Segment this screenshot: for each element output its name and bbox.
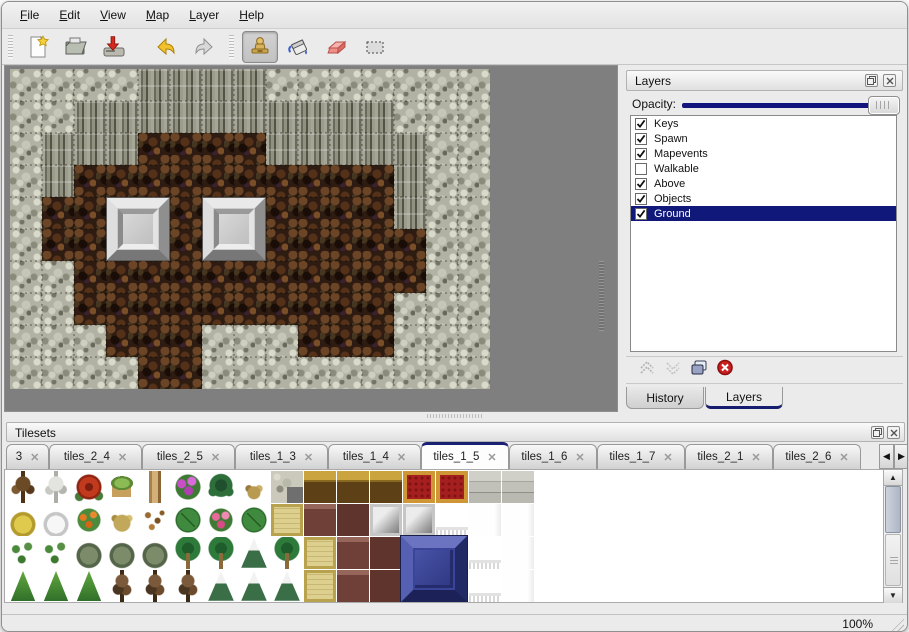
map-tile-rock[interactable]	[426, 69, 458, 101]
tileset-tab-label: tiles_2_6	[785, 451, 831, 463]
palette-tile-tree_twist[interactable]	[139, 570, 171, 602]
map-canvas[interactable]	[10, 69, 490, 389]
palette-tile-tree_snow[interactable]	[40, 471, 72, 503]
tileset-tab-label: tiles_1_6	[521, 451, 567, 463]
close-tab-icon[interactable]: ✕	[575, 451, 584, 464]
vertical-splitter-handle[interactable]	[599, 261, 604, 331]
map-tile-rock[interactable]	[426, 293, 458, 325]
map-tile-floor[interactable]	[362, 165, 394, 197]
palette-tile-weed[interactable]	[238, 471, 270, 503]
map-tile-floor[interactable]	[298, 261, 330, 293]
map-tile-floor[interactable]	[330, 325, 362, 357]
map-tile-rock[interactable]	[10, 325, 42, 357]
map-tile-floor[interactable]	[330, 165, 362, 197]
map-tile-cliff-wall[interactable]	[74, 101, 106, 133]
palette-tile-tree_cone[interactable]	[73, 570, 105, 602]
menu-item-edit[interactable]: Edit	[49, 4, 90, 26]
palette-tile-sprouts[interactable]	[40, 537, 72, 569]
dock-tab-layers[interactable]: Layers	[705, 387, 783, 409]
map-tile-cliff-wall[interactable]	[42, 133, 74, 165]
map-tile-cliff-wall[interactable]	[202, 69, 234, 101]
map-tile-floor[interactable]	[266, 261, 298, 293]
new-file-icon	[25, 34, 51, 60]
palette-tile-mat[interactable]	[304, 537, 336, 569]
map-tile-rock[interactable]	[42, 101, 74, 133]
map-tile-rock[interactable]	[458, 261, 490, 293]
map-tile-cliff-wall[interactable]	[74, 133, 106, 165]
palette-tile-bush_green[interactable]	[139, 537, 171, 569]
close-tab-icon[interactable]: ✕	[397, 451, 406, 464]
map-tile-floor[interactable]	[298, 229, 330, 261]
layer-visibility-checkbox[interactable]	[635, 208, 647, 220]
palette-tile-table_gold[interactable]	[370, 471, 402, 503]
stone-platform[interactable]	[203, 198, 265, 260]
raise-layer-button[interactable]	[634, 359, 660, 381]
palette-tile-carpet_red[interactable]	[403, 471, 435, 503]
map-tile-cliff-wall[interactable]	[330, 133, 362, 165]
map-tile-floor[interactable]	[170, 325, 202, 357]
map-tile-rock[interactable]	[10, 229, 42, 261]
map-tile-cliff-wall[interactable]	[394, 197, 426, 229]
layer-row-objects[interactable]: Objects	[631, 191, 896, 206]
menu-item-layer[interactable]: Layer	[179, 4, 229, 26]
fill-tool-icon	[286, 34, 312, 60]
duplicate-layer-button[interactable]	[686, 359, 712, 381]
palette-tile-white[interactable]	[502, 570, 534, 602]
close-tab-icon[interactable]: ✕	[751, 451, 760, 464]
map-tile-floor[interactable]	[170, 357, 202, 389]
palette-tile-table_gold[interactable]	[337, 471, 369, 503]
palette-tile-table_maroon[interactable]	[304, 504, 336, 536]
undo-icon	[153, 34, 179, 60]
new-file-button[interactable]	[21, 32, 55, 62]
map-tile-rock[interactable]	[106, 69, 138, 101]
map-tile-rock[interactable]	[426, 357, 458, 389]
palette-tile-tree_twist[interactable]	[172, 570, 204, 602]
map-tile-cliff-wall[interactable]	[362, 101, 394, 133]
map-tile-cliff-wall[interactable]	[170, 101, 202, 133]
map-tile-floor[interactable]	[362, 293, 394, 325]
scrollbar-grip[interactable]	[885, 534, 901, 586]
opacity-slider-track[interactable]	[682, 103, 898, 108]
map-tile-floor[interactable]	[74, 293, 106, 325]
map-tile-floor[interactable]	[138, 325, 170, 357]
map-tile-rock[interactable]	[330, 357, 362, 389]
layer-row-walkable[interactable]: Walkable	[631, 161, 896, 176]
map-tile-cliff-wall[interactable]	[106, 133, 138, 165]
highlighted-blue-tile[interactable]	[401, 536, 467, 602]
layer-row-spawn[interactable]: Spawn	[631, 131, 896, 146]
palette-tile-pine_snow[interactable]	[238, 570, 270, 602]
palette-tile-curtain[interactable]	[436, 504, 468, 536]
map-tile-rock[interactable]	[74, 357, 106, 389]
layers-dock-titlebar: Layers	[626, 70, 903, 91]
menu-item-help[interactable]: Help	[229, 4, 274, 26]
stamp-tool-button[interactable]	[242, 31, 278, 63]
map-tile-rock[interactable]	[394, 101, 426, 133]
map-tile-floor[interactable]	[202, 261, 234, 293]
palette-tile-pine_snow[interactable]	[271, 570, 303, 602]
map-tile-rock[interactable]	[362, 69, 394, 101]
layer-visibility-checkbox[interactable]	[635, 193, 647, 205]
toolbar-handle	[8, 35, 13, 59]
map-tile-floor[interactable]	[234, 293, 266, 325]
save-file-icon	[101, 34, 127, 60]
palette-tile-hay[interactable]	[7, 504, 39, 536]
palette-tile-lilypad[interactable]	[238, 504, 270, 536]
tileset-tab-bar: 3✕tiles_2_4✕tiles_2_5✕tiles_1_3✕tiles_1_…	[4, 442, 908, 469]
tileset-palette[interactable]	[4, 469, 883, 603]
map-tile-rock[interactable]	[42, 357, 74, 389]
map-tile-cliff-wall[interactable]	[234, 101, 266, 133]
palette-tile-trunk[interactable]	[139, 471, 171, 503]
map-tile-rock[interactable]	[266, 357, 298, 389]
layer-row-ground[interactable]: Ground	[631, 206, 896, 221]
palette-tile-table_maroon[interactable]	[337, 537, 369, 569]
layer-name: Ground	[654, 208, 691, 220]
map-tile-rock[interactable]	[394, 293, 426, 325]
tileset-tab-tiles_2_6[interactable]: tiles_2_6✕	[773, 444, 861, 469]
map-tile-floor[interactable]	[170, 165, 202, 197]
palette-tile-silver_block[interactable]	[403, 504, 435, 536]
map-tile-rock[interactable]	[458, 357, 490, 389]
map-tile-floor[interactable]	[202, 133, 234, 165]
menu-item-map[interactable]: Map	[136, 4, 179, 26]
map-tile-rock[interactable]	[458, 197, 490, 229]
map-tile-rock[interactable]	[458, 101, 490, 133]
map-tile-cliff-wall[interactable]	[394, 165, 426, 197]
map-tile-rock[interactable]	[106, 357, 138, 389]
map-tile-rock[interactable]	[10, 293, 42, 325]
map-tile-floor[interactable]	[330, 293, 362, 325]
palette-tile-leaves[interactable]	[139, 504, 171, 536]
palette-tile-fern[interactable]	[205, 471, 237, 503]
map-tile-floor[interactable]	[170, 133, 202, 165]
map-tile-rock[interactable]	[74, 69, 106, 101]
map-tile-floor[interactable]	[74, 197, 106, 229]
tileset-tab-tiles_2_4[interactable]: tiles_2_4✕	[49, 444, 142, 469]
map-tile-floor[interactable]	[170, 261, 202, 293]
tileset-tab-tiles_1_3[interactable]: tiles_1_3✕	[235, 444, 328, 469]
palette-tile-table_maroon[interactable]	[337, 570, 369, 602]
map-tile-rock[interactable]	[298, 69, 330, 101]
close-tab-icon[interactable]: ✕	[211, 451, 220, 464]
palette-tile-sprouts[interactable]	[7, 537, 39, 569]
palette-tile-palm[interactable]	[271, 537, 303, 569]
map-tile-rock[interactable]	[426, 133, 458, 165]
map-tile-floor[interactable]	[74, 165, 106, 197]
horizontal-splitter-handle[interactable]	[427, 414, 482, 418]
map-tile-rock[interactable]	[426, 325, 458, 357]
opacity-slider-handle[interactable]	[868, 96, 900, 115]
zoom-level: 100%	[842, 617, 873, 631]
palette-tile-mat[interactable]	[304, 570, 336, 602]
palette-tile-palm[interactable]	[172, 537, 204, 569]
palette-tile-snow_mound[interactable]	[40, 504, 72, 536]
map-tile-rock[interactable]	[266, 325, 298, 357]
map-tile-floor[interactable]	[234, 165, 266, 197]
menu-item-file[interactable]: File	[10, 4, 49, 26]
close-tab-icon[interactable]: ✕	[839, 451, 848, 464]
tileset-tab-tiles_2_1[interactable]: tiles_2_1✕	[685, 444, 773, 469]
layer-visibility-checkbox[interactable]	[635, 163, 647, 175]
lower-layer-button[interactable]	[660, 359, 686, 381]
map-tile-floor[interactable]	[202, 165, 234, 197]
tileset-tab-tiles_1_6[interactable]: tiles_1_6✕	[509, 444, 597, 469]
map-tile-floor[interactable]	[266, 229, 298, 261]
map-tile-floor[interactable]	[362, 229, 394, 261]
map-tile-floor[interactable]	[362, 197, 394, 229]
map-tile-rock[interactable]	[458, 165, 490, 197]
palette-tile-white[interactable]	[469, 504, 501, 536]
map-tile-floor[interactable]	[234, 133, 266, 165]
map-tile-cliff-wall[interactable]	[298, 133, 330, 165]
palette-tile-flowers_pink[interactable]	[205, 504, 237, 536]
stone-platform[interactable]	[107, 198, 169, 260]
map-tile-rock[interactable]	[330, 69, 362, 101]
layer-row-mapevents[interactable]: Mapevents	[631, 146, 896, 161]
map-tile-rock[interactable]	[362, 357, 394, 389]
palette-tile-tree_cone[interactable]	[40, 570, 72, 602]
float-panel-icon[interactable]	[871, 426, 884, 439]
delete-layer-icon	[716, 359, 734, 381]
map-tile-rock[interactable]	[458, 325, 490, 357]
map-tile-rock[interactable]	[426, 101, 458, 133]
map-tile-rock[interactable]	[458, 133, 490, 165]
delete-layer-button[interactable]	[712, 359, 738, 381]
map-tile-floor[interactable]	[234, 261, 266, 293]
map-tile-floor[interactable]	[170, 197, 202, 229]
map-tile-rock[interactable]	[394, 69, 426, 101]
map-tile-rock[interactable]	[458, 293, 490, 325]
map-tile-floor[interactable]	[74, 261, 106, 293]
map-tile-rock[interactable]	[426, 261, 458, 293]
close-panel-icon[interactable]	[883, 74, 896, 87]
tileset-tab-tiles_1_5[interactable]: tiles_1_5✕	[421, 442, 509, 469]
map-tile-floor[interactable]	[362, 325, 394, 357]
map-tile-floor[interactable]	[42, 197, 74, 229]
map-tile-rock[interactable]	[10, 165, 42, 197]
map-tile-floor[interactable]	[266, 293, 298, 325]
map-tile-floor[interactable]	[330, 229, 362, 261]
palette-tile-bush_green[interactable]	[106, 537, 138, 569]
map-tile-floor[interactable]	[330, 261, 362, 293]
map-tile-floor[interactable]	[394, 229, 426, 261]
resize-grip[interactable]	[890, 617, 904, 631]
palette-tile-flower_red[interactable]	[73, 471, 105, 503]
palette-tile-tree_bare[interactable]	[7, 471, 39, 503]
save-file-button[interactable]	[97, 32, 131, 62]
layer-visibility-checkbox[interactable]	[635, 178, 647, 190]
close-tab-icon[interactable]: ✕	[118, 451, 127, 464]
map-tile-floor[interactable]	[266, 197, 298, 229]
app-window: FileEditViewMapLayerHelp Layers Opacity:…	[1, 1, 908, 632]
close-panel-icon[interactable]	[887, 426, 900, 439]
tileset-tab-tiles_1_7[interactable]: tiles_1_7✕	[597, 444, 685, 469]
close-tab-icon[interactable]: ✕	[487, 451, 496, 464]
tilesets-dock: Tilesets 3✕tiles_2_4✕tiles_2_5✕tiles_1_3…	[4, 420, 908, 614]
map-tile-cliff-wall[interactable]	[266, 101, 298, 133]
map-tile-rock[interactable]	[426, 197, 458, 229]
palette-tile-pine_snow[interactable]	[205, 570, 237, 602]
map-tile-floor[interactable]	[298, 293, 330, 325]
map-tile-rock[interactable]	[266, 69, 298, 101]
map-tile-rock[interactable]	[42, 293, 74, 325]
map-tile-rock[interactable]	[458, 229, 490, 261]
map-tile-cliff-wall[interactable]	[298, 101, 330, 133]
redo-button[interactable]	[187, 32, 221, 62]
tilesets-dock-titlebar: Tilesets	[6, 422, 905, 442]
palette-tile-flowers_orange[interactable]	[73, 504, 105, 536]
map-tile-floor[interactable]	[106, 325, 138, 357]
select-tool-button[interactable]	[358, 32, 392, 62]
map-tile-rock[interactable]	[234, 357, 266, 389]
redo-icon	[191, 34, 217, 60]
map-tile-floor[interactable]	[362, 261, 394, 293]
map-tile-floor[interactable]	[106, 293, 138, 325]
map-tile-floor[interactable]	[138, 357, 170, 389]
map-tile-floor[interactable]	[298, 165, 330, 197]
scroll-down-icon[interactable]: ▼	[884, 587, 902, 603]
map-tile-rock[interactable]	[426, 165, 458, 197]
palette-tile-carpet_red[interactable]	[436, 471, 468, 503]
map-tile-floor[interactable]	[106, 261, 138, 293]
map-tile-floor[interactable]	[138, 261, 170, 293]
tileset-tab-tiles_2_5[interactable]: tiles_2_5✕	[142, 444, 235, 469]
map-tile-rock[interactable]	[234, 325, 266, 357]
layer-visibility-checkbox[interactable]	[635, 148, 647, 160]
map-tile-rock[interactable]	[426, 229, 458, 261]
tileset-tab-tiles_1_4[interactable]: tiles_1_4✕	[328, 444, 421, 469]
palette-tile-maroon_dark[interactable]	[370, 537, 402, 569]
map-tile-floor[interactable]	[42, 229, 74, 261]
map-tile-rock[interactable]	[298, 357, 330, 389]
palette-tile-tree_twist[interactable]	[106, 570, 138, 602]
layer-visibility-checkbox[interactable]	[635, 118, 647, 130]
layer-name: Mapevents	[654, 148, 708, 160]
palette-tile-white[interactable]	[502, 504, 534, 536]
palette-tile-bush_purple[interactable]	[172, 471, 204, 503]
map-tile-floor[interactable]	[394, 261, 426, 293]
palette-tile-maroon_dark[interactable]	[337, 504, 369, 536]
map-tile-rock[interactable]	[10, 261, 42, 293]
map-tile-rock[interactable]	[74, 325, 106, 357]
map-tile-rock[interactable]	[202, 325, 234, 357]
map-tile-floor[interactable]	[298, 197, 330, 229]
palette-tile-stone_gray[interactable]	[469, 471, 501, 503]
map-tile-floor[interactable]	[138, 133, 170, 165]
map-tile-rock[interactable]	[10, 133, 42, 165]
palette-tile-curtain[interactable]	[469, 570, 501, 602]
layer-visibility-checkbox[interactable]	[635, 133, 647, 145]
close-tab-icon[interactable]: ✕	[30, 451, 39, 464]
map-tile-cliff-wall[interactable]	[170, 69, 202, 101]
scroll-up-icon[interactable]: ▲	[884, 470, 902, 486]
palette-tile-grass_dry[interactable]	[106, 504, 138, 536]
scrollbar-thumb[interactable]	[885, 486, 901, 533]
menu-item-view[interactable]: View	[90, 4, 136, 26]
float-panel-icon[interactable]	[865, 74, 878, 87]
map-tile-floor[interactable]	[202, 293, 234, 325]
dock-tab-history[interactable]: History	[626, 387, 704, 409]
undo-button[interactable]	[149, 32, 183, 62]
tab-scroll-left-button[interactable]: ◀	[879, 444, 894, 469]
map-tile-rock[interactable]	[42, 261, 74, 293]
map-tile-cliff-wall[interactable]	[234, 69, 266, 101]
tileset-tab-3[interactable]: 3✕	[6, 444, 49, 469]
map-tile-rock[interactable]	[202, 357, 234, 389]
map-tile-floor[interactable]	[106, 165, 138, 197]
palette-tile-stone_gray[interactable]	[502, 471, 534, 503]
map-tile-cliff-wall[interactable]	[202, 101, 234, 133]
map-tile-cliff-wall[interactable]	[138, 69, 170, 101]
layer-row-keys[interactable]: Keys	[631, 116, 896, 131]
map-tile-rock[interactable]	[10, 197, 42, 229]
map-tile-floor[interactable]	[330, 197, 362, 229]
palette-scrollbar[interactable]: ▲ ▼	[883, 469, 903, 603]
map-tile-cliff-wall[interactable]	[362, 133, 394, 165]
map-tile-floor[interactable]	[298, 325, 330, 357]
palette-tile-maroon_dark[interactable]	[370, 570, 402, 602]
map-tile-rock[interactable]	[10, 357, 42, 389]
palette-tile-mat[interactable]	[271, 504, 303, 536]
map-tile-rock[interactable]	[10, 69, 42, 101]
palette-tile-palm[interactable]	[205, 537, 237, 569]
opacity-label: Opacity:	[632, 97, 676, 111]
map-tile-rock[interactable]	[10, 101, 42, 133]
map-tile-rock[interactable]	[394, 325, 426, 357]
stamp-tool-icon	[247, 34, 273, 60]
palette-tile-stump[interactable]	[106, 471, 138, 503]
palette-tile-bush_green[interactable]	[73, 537, 105, 569]
palette-tile-curtain[interactable]	[469, 537, 501, 569]
map-tile-floor[interactable]	[138, 165, 170, 197]
palette-tile-lilypad[interactable]	[172, 504, 204, 536]
map-tile-floor[interactable]	[138, 293, 170, 325]
palette-tile-stone_corner[interactable]	[271, 471, 303, 503]
map-tile-cliff-wall[interactable]	[266, 133, 298, 165]
tab-scroll-right-button[interactable]: ▶	[894, 444, 908, 469]
map-canvas-panel[interactable]	[4, 65, 618, 412]
map-tile-floor[interactable]	[266, 165, 298, 197]
fill-tool-button[interactable]	[282, 32, 316, 62]
map-tile-cliff-wall[interactable]	[138, 101, 170, 133]
map-tile-cliff-wall[interactable]	[330, 101, 362, 133]
palette-tile-table_gold[interactable]	[304, 471, 336, 503]
map-tile-rock[interactable]	[42, 325, 74, 357]
eraser-tool-button[interactable]	[320, 32, 354, 62]
map-tile-floor[interactable]	[170, 293, 202, 325]
map-tile-floor[interactable]	[170, 229, 202, 261]
map-tile-rock[interactable]	[394, 357, 426, 389]
close-tab-icon[interactable]: ✕	[304, 451, 313, 464]
layer-row-above[interactable]: Above	[631, 176, 896, 191]
palette-tile-white[interactable]	[502, 537, 534, 569]
map-tile-cliff-wall[interactable]	[106, 101, 138, 133]
map-tile-rock[interactable]	[458, 69, 490, 101]
palette-tile-silver_block[interactable]	[370, 504, 402, 536]
palette-tile-pine_snow[interactable]	[238, 537, 270, 569]
tileset-tab-label: tiles_1_3	[250, 451, 296, 463]
map-tile-cliff-wall[interactable]	[394, 133, 426, 165]
close-tab-icon[interactable]: ✕	[663, 451, 672, 464]
layer-name: Objects	[654, 193, 691, 205]
open-file-button[interactable]	[59, 32, 93, 62]
map-tile-rock[interactable]	[42, 69, 74, 101]
map-tile-cliff-wall[interactable]	[42, 165, 74, 197]
palette-tile-tree_cone[interactable]	[7, 570, 39, 602]
map-tile-floor[interactable]	[74, 229, 106, 261]
